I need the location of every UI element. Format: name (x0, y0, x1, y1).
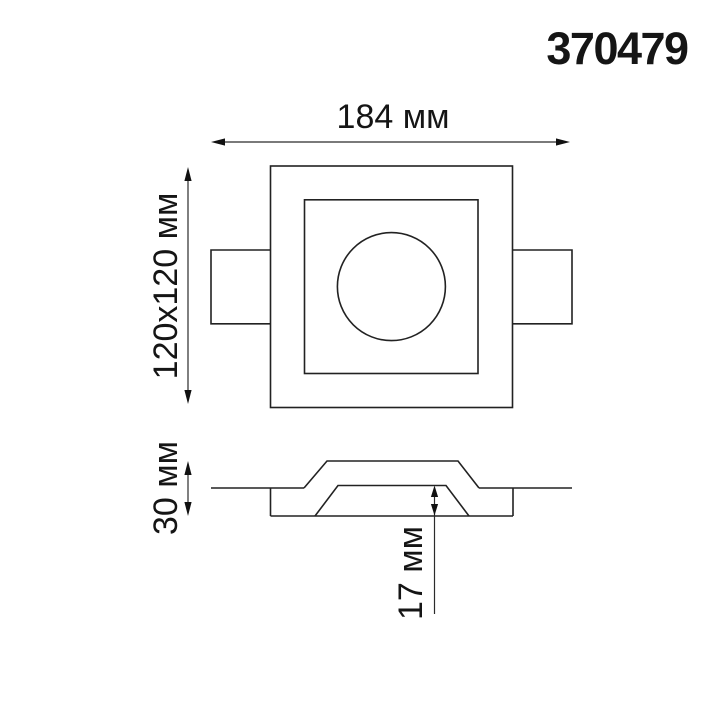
svg-text:17 мм: 17 мм (392, 526, 430, 620)
svg-text:120x120 мм: 120x120 мм (147, 193, 185, 380)
svg-text:184 мм: 184 мм (337, 98, 450, 136)
svg-text:370479: 370479 (546, 23, 688, 74)
svg-text:30 мм: 30 мм (147, 441, 185, 535)
